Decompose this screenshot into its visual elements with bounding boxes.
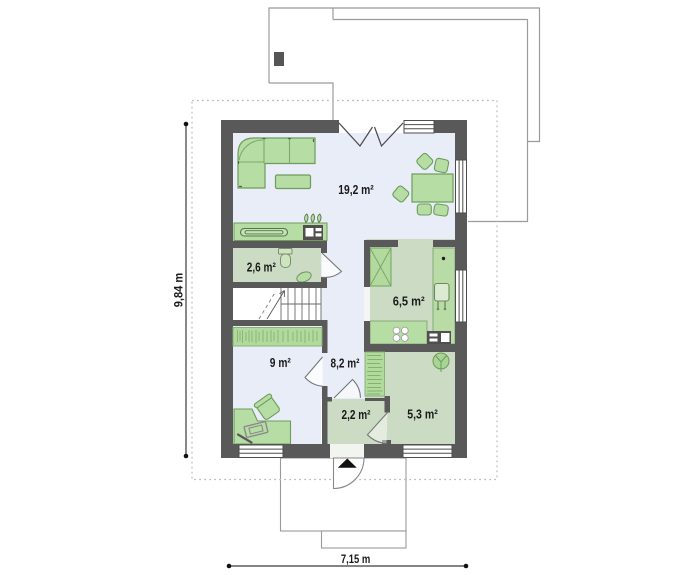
- svg-text:2,6 m²: 2,6 m²: [247, 259, 277, 274]
- svg-text:9 m²: 9 m²: [270, 355, 292, 370]
- svg-text:9,84 m: 9,84 m: [174, 273, 186, 308]
- svg-text:5,3 m²: 5,3 m²: [407, 406, 438, 421]
- svg-text:8,2 m²: 8,2 m²: [331, 356, 361, 371]
- svg-text:2,2 m²: 2,2 m²: [342, 407, 372, 422]
- svg-text:19,2 m²: 19,2 m²: [338, 182, 374, 197]
- svg-text:7,15 m: 7,15 m: [341, 554, 371, 566]
- svg-text:6,5 m²: 6,5 m²: [393, 294, 426, 309]
